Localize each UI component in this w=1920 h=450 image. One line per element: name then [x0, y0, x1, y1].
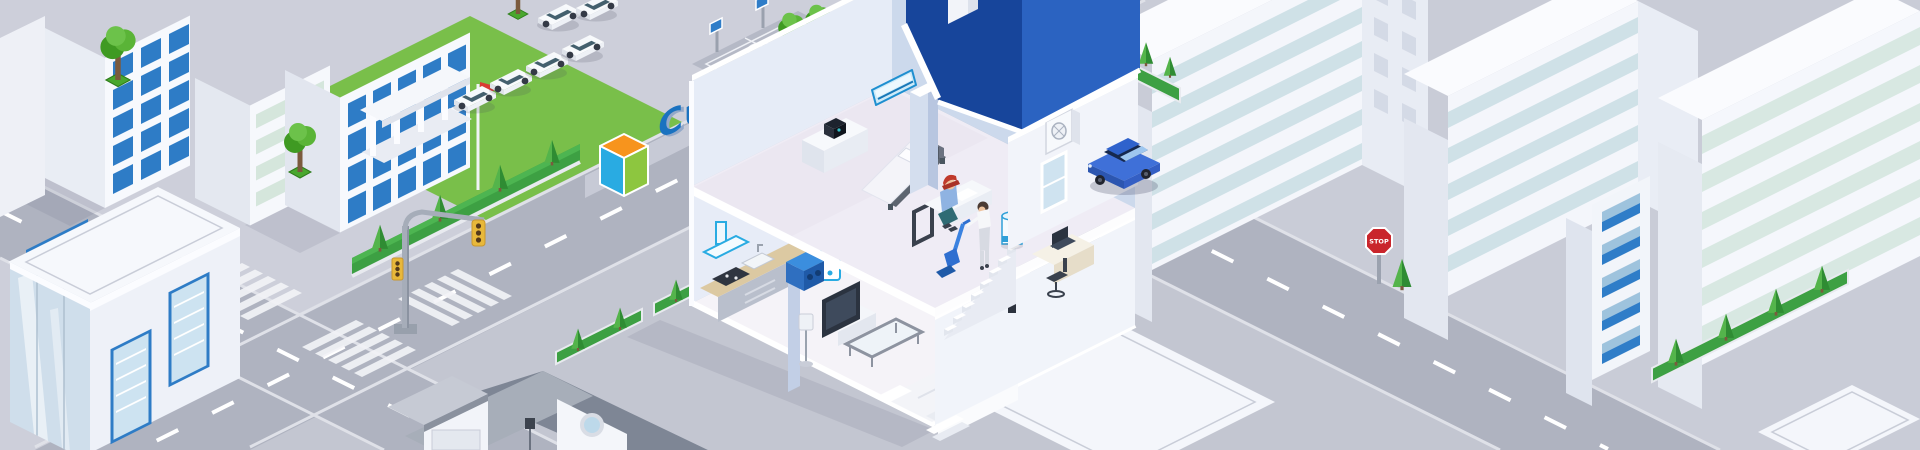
city-illustration: Cubic Cubic	[0, 0, 1920, 450]
logo-cube-icon	[600, 134, 648, 196]
building-slab	[0, 16, 45, 217]
shuttered-door	[112, 331, 150, 442]
corner-trim	[689, 81, 694, 306]
stop-sign-text: STOP	[1369, 238, 1389, 246]
upper-partition-wall	[910, 83, 938, 194]
shuttered-door	[170, 274, 208, 385]
city-illustration-banner: Cubic Cubic	[0, 0, 1920, 450]
window-icon	[1042, 152, 1066, 212]
round-window-icon	[582, 415, 602, 435]
traffic-signal-icon	[392, 258, 403, 280]
traffic-signal-icon	[472, 220, 485, 246]
